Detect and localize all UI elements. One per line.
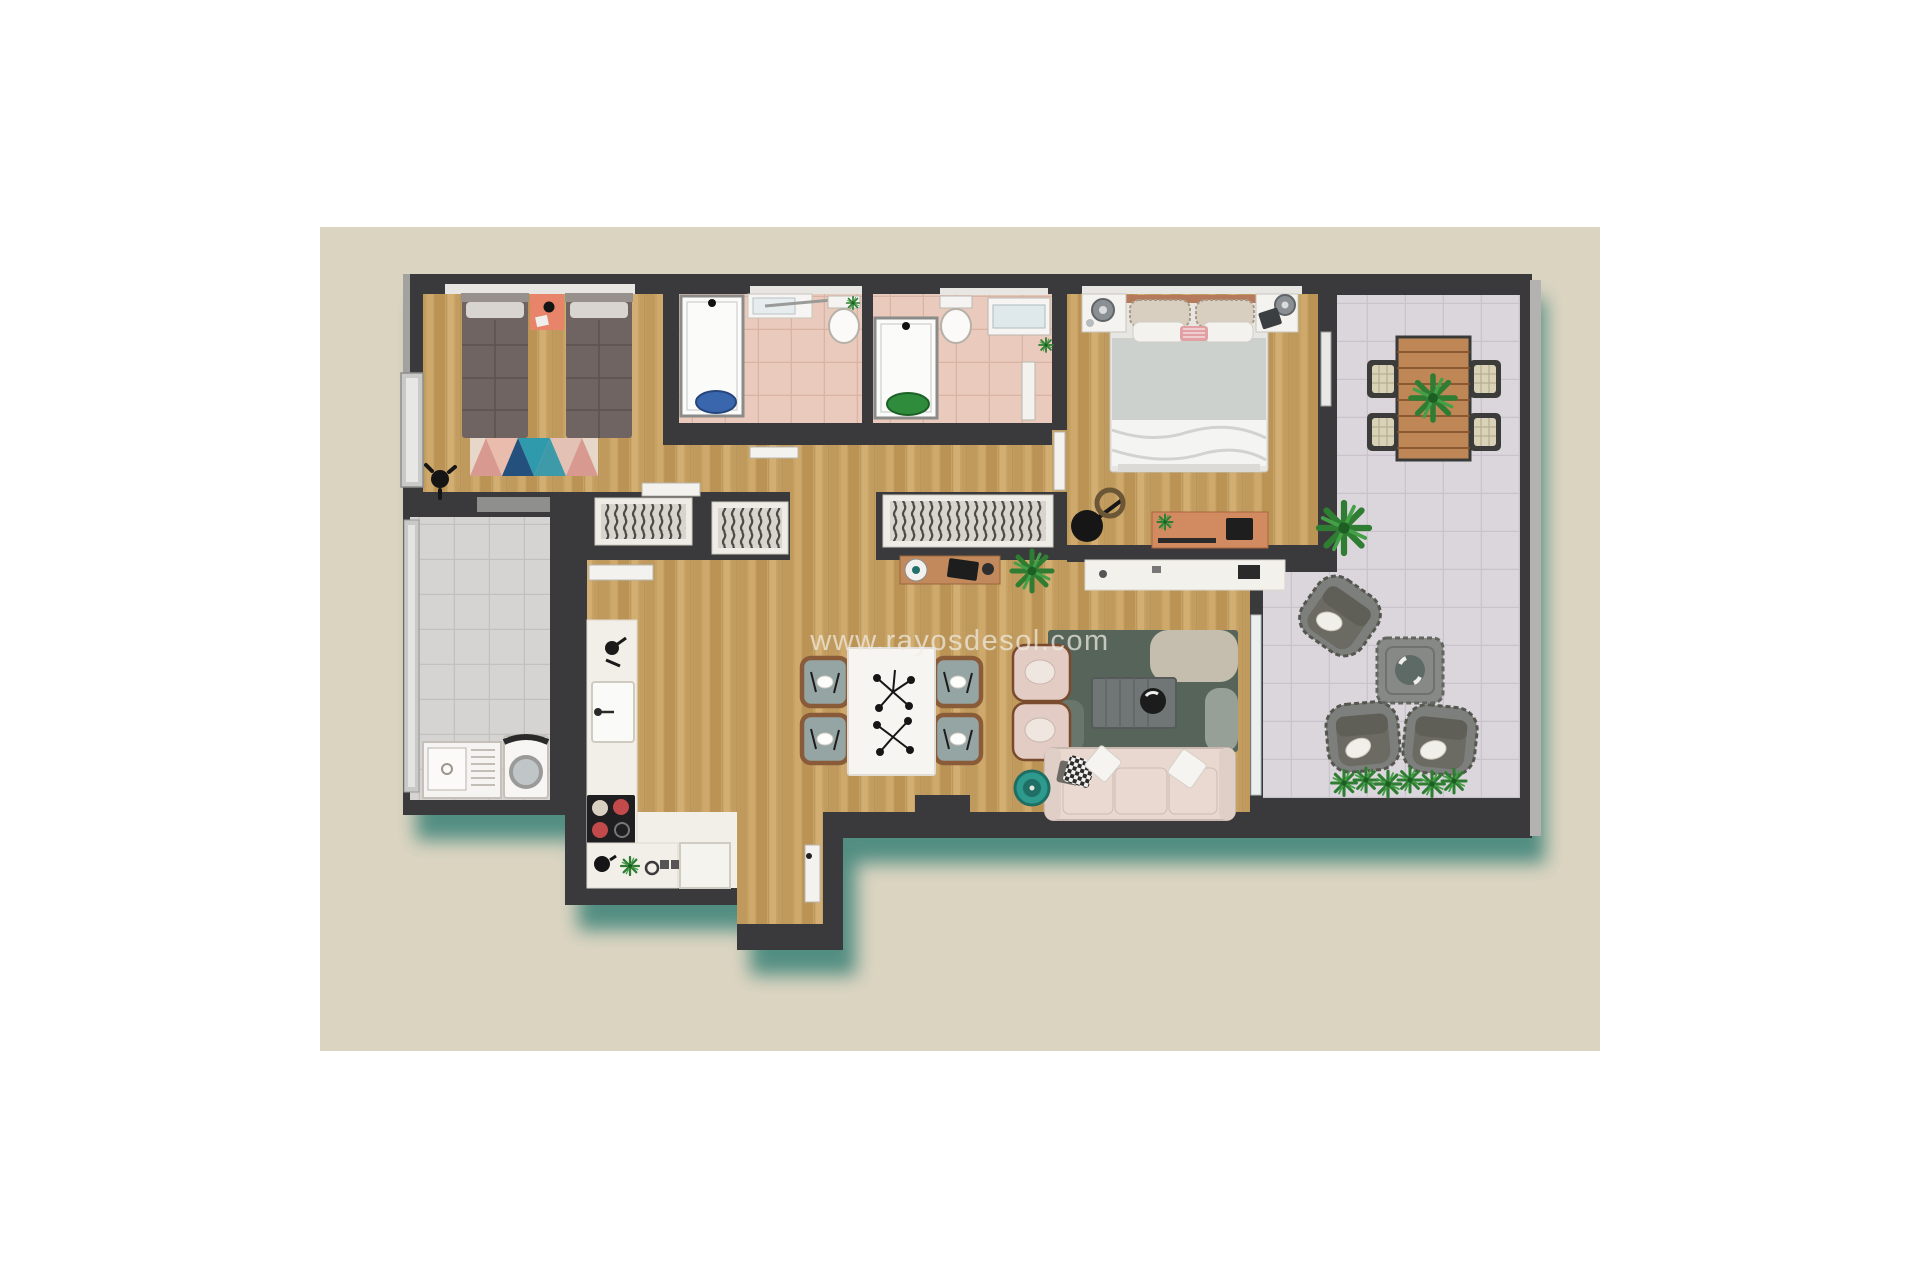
towel-blue bbox=[696, 391, 736, 413]
bedroom-2-lowwall-glass bbox=[477, 497, 550, 512]
desk bbox=[1152, 512, 1268, 548]
wardrobe-3 bbox=[883, 495, 1053, 547]
wicker-chair-3 bbox=[1401, 702, 1480, 777]
terrace-edge-strip bbox=[1530, 280, 1541, 836]
toilet-2 bbox=[940, 296, 972, 343]
sofa bbox=[1045, 745, 1235, 820]
table-lamp bbox=[544, 302, 555, 313]
floor-plan-page: www.rayosdesol.com bbox=[0, 0, 1920, 1280]
double-bed bbox=[1110, 295, 1268, 472]
washing-machine bbox=[504, 736, 548, 798]
nightstand-right bbox=[1256, 294, 1298, 332]
floorplan-svg: www.rayosdesol.com bbox=[0, 0, 1920, 1280]
wardrobe-1 bbox=[595, 498, 692, 545]
utility-terrace bbox=[423, 736, 548, 798]
triangle-rug bbox=[470, 438, 598, 476]
utility-door bbox=[589, 565, 653, 580]
left-wall-cap bbox=[403, 274, 410, 375]
hall-floor bbox=[663, 445, 1067, 492]
entry-door bbox=[805, 845, 820, 902]
teal-side-table bbox=[1015, 771, 1049, 805]
bedroom-2-door bbox=[642, 483, 700, 496]
wicker-table bbox=[1377, 638, 1443, 703]
wardrobe-2 bbox=[712, 502, 788, 554]
laundry-sink-unit bbox=[423, 742, 501, 798]
fridge bbox=[680, 843, 730, 888]
towel-green bbox=[887, 393, 929, 415]
bathroom-2-door bbox=[1022, 362, 1035, 420]
dining-table bbox=[848, 648, 935, 775]
coffee-table bbox=[1092, 678, 1176, 728]
record-sideboard bbox=[900, 556, 1000, 584]
wicker-chair-2 bbox=[1324, 700, 1402, 774]
nightstand-left bbox=[1082, 294, 1126, 332]
hall-plant bbox=[1012, 551, 1052, 591]
entry-door-handle bbox=[806, 853, 812, 859]
corner-plant bbox=[1319, 503, 1369, 553]
stove bbox=[587, 795, 635, 845]
master-bedroom-door bbox=[1054, 432, 1065, 490]
terrace-dining-table bbox=[1397, 337, 1470, 460]
hall-gap-floor bbox=[790, 492, 876, 560]
watermark: www.rayosdesol.com bbox=[809, 625, 1109, 657]
bathroom-1-door bbox=[750, 447, 798, 458]
